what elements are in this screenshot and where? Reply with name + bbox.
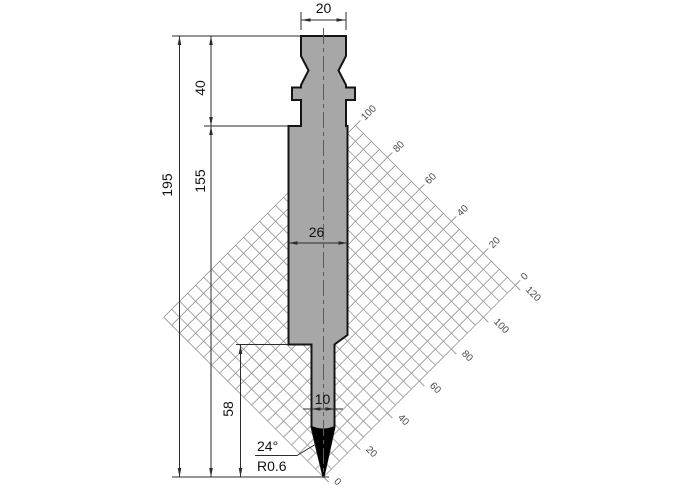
arrow: [209, 117, 213, 126]
grid-tick: [324, 477, 329, 482]
arrow: [209, 126, 213, 135]
dim-shank-width: 10: [315, 391, 331, 407]
dim-tip-angle: 24°: [257, 438, 278, 454]
dim-top-width: 20: [316, 0, 332, 16]
grid-tick: [451, 216, 456, 221]
grid-y-label: 40: [455, 203, 471, 219]
drawing-canvas: 020406080100120020406080100: [0, 0, 680, 490]
grid-x-label: 60: [427, 380, 443, 396]
grid-y-label: 0: [519, 271, 531, 283]
dim-tip-radius: R0.6: [257, 458, 287, 474]
grid-tick: [387, 152, 392, 157]
grid-tick: [515, 280, 520, 285]
arrow: [302, 18, 311, 22]
grid-tick: [419, 184, 424, 189]
arrow: [209, 468, 213, 477]
grid-tick: [355, 445, 360, 450]
grid-y-label: 80: [391, 139, 407, 155]
arrow: [337, 18, 346, 22]
grid-tick: [515, 285, 520, 290]
arrow: [209, 36, 213, 45]
grid-y-label: 100: [359, 103, 379, 123]
grid-tick: [355, 120, 360, 125]
grid-tick: [387, 413, 392, 418]
grid-x-label: 0: [331, 476, 343, 488]
mm-grid: 020406080100120020406080100: [161, 103, 554, 490]
grid-tick: [451, 349, 456, 354]
arrow: [239, 345, 243, 354]
grid-tick: [419, 381, 424, 386]
grid-x-label: 80: [459, 348, 475, 364]
arrow: [178, 468, 182, 477]
grid-x-label: 40: [395, 412, 411, 428]
grid-x-label: 100: [491, 316, 511, 336]
grid-y-label: 60: [423, 171, 439, 187]
dim-lower-height: 155: [192, 169, 208, 193]
dim-body-width: 26: [309, 224, 325, 240]
grid-tick: [483, 248, 488, 253]
arrow: [178, 36, 182, 45]
arrow: [239, 468, 243, 477]
dim-head-height: 40: [192, 80, 208, 96]
dim-total-height: 195: [159, 173, 175, 197]
grid-y-label: 20: [487, 235, 503, 251]
grid-x-label: 120: [523, 285, 543, 305]
grid-tick: [483, 317, 488, 322]
grid-x-label: 20: [363, 444, 379, 460]
dim-tip-section-height: 58: [220, 401, 236, 417]
punch-drawing-svg: 020406080100120020406080100: [0, 0, 680, 490]
punch-outline: [289, 36, 356, 477]
